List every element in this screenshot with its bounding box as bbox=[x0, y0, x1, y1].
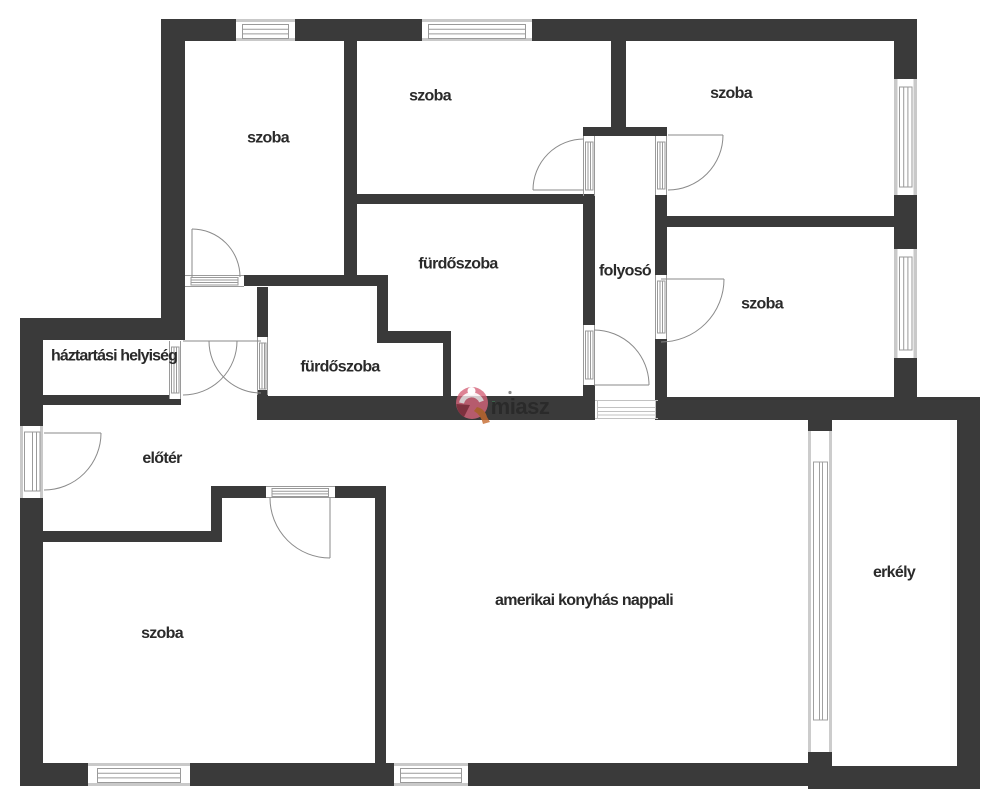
svg-text:szoba: szoba bbox=[409, 88, 452, 105]
svg-text:szoba: szoba bbox=[741, 296, 784, 313]
svg-text:fürdőszoba: fürdőszoba bbox=[418, 256, 498, 273]
svg-text:szoba: szoba bbox=[247, 130, 290, 147]
svg-text:szoba: szoba bbox=[710, 85, 753, 102]
svg-text:miasz: miasz bbox=[491, 394, 550, 419]
svg-text:szoba: szoba bbox=[141, 625, 184, 642]
svg-text:erkély: erkély bbox=[873, 564, 916, 581]
svg-text:amerikai konyhás nappali: amerikai konyhás nappali bbox=[495, 592, 673, 609]
svg-text:folyosó: folyosó bbox=[599, 263, 652, 280]
svg-text:előtér: előtér bbox=[142, 450, 182, 467]
svg-text:fürdőszoba: fürdőszoba bbox=[300, 359, 380, 376]
svg-text:háztartási helyiség: háztartási helyiség bbox=[51, 348, 177, 365]
